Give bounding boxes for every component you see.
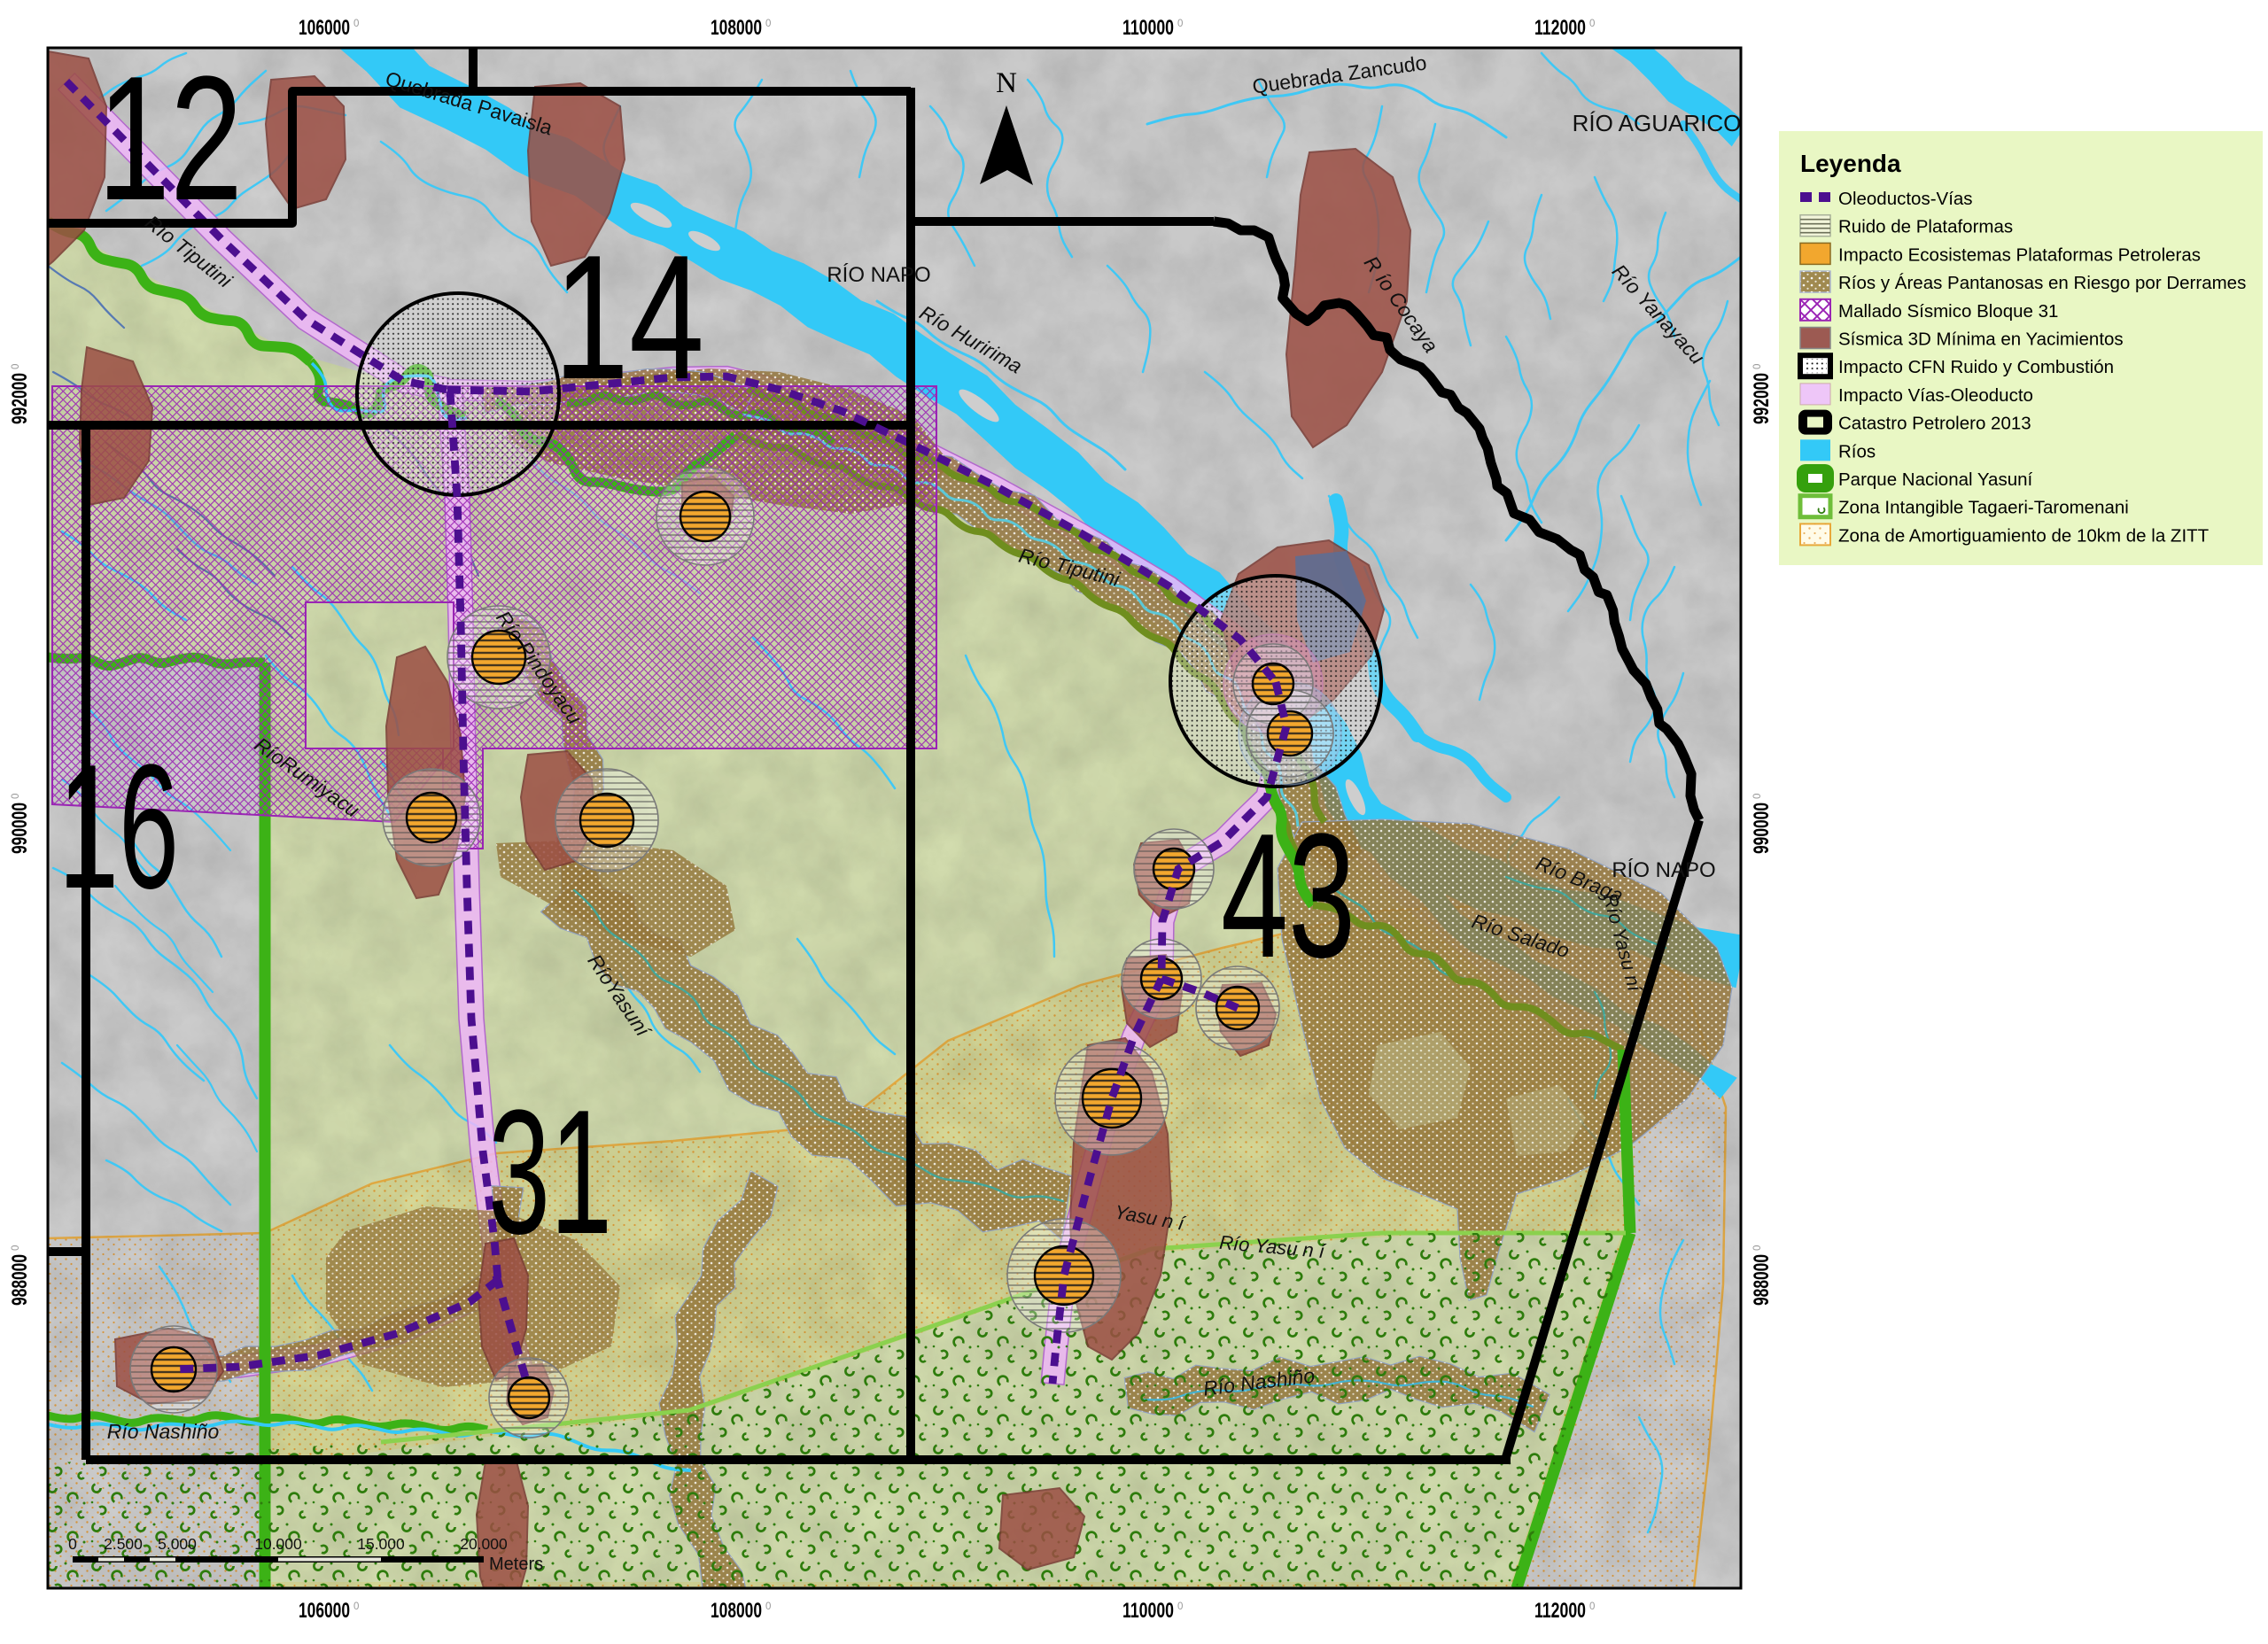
svg-text:0: 0 xyxy=(1177,19,1183,29)
svg-text:N: N xyxy=(996,67,1017,99)
svg-text:106000: 106000 xyxy=(299,1599,350,1623)
svg-text:Parque Nacional Yasuní: Parque Nacional Yasuní xyxy=(1838,469,2032,490)
svg-text:Leyenda: Leyenda xyxy=(1800,150,1901,177)
svg-text:0: 0 xyxy=(765,1601,771,1612)
svg-text:0: 0 xyxy=(1589,19,1595,29)
svg-text:Ruido de Plataformas: Ruido de Plataformas xyxy=(1838,217,2013,237)
svg-text:10.000: 10.000 xyxy=(254,1535,302,1553)
svg-text:0: 0 xyxy=(1752,1245,1763,1251)
svg-text:31: 31 xyxy=(488,1074,612,1271)
svg-text:RÍO AGUARICO: RÍO AGUARICO xyxy=(1573,110,1742,136)
svg-text:990000: 990000 xyxy=(1750,803,1774,854)
svg-text:Impacto Vías-Oleoducto: Impacto Vías-Oleoducto xyxy=(1838,385,2033,406)
svg-text:2.500: 2.500 xyxy=(104,1535,143,1553)
svg-text:43: 43 xyxy=(1221,797,1355,995)
svg-text:16: 16 xyxy=(58,728,179,926)
svg-text:Catastro Petrolero 2013: Catastro Petrolero 2013 xyxy=(1838,414,2031,434)
svg-text:106000: 106000 xyxy=(299,16,350,40)
svg-text:Zona Intangible Tagaeri-Tarome: Zona Intangible Tagaeri-Taromenani xyxy=(1838,498,2129,518)
svg-text:14: 14 xyxy=(554,219,704,416)
svg-text:15.000: 15.000 xyxy=(357,1535,405,1553)
svg-text:Meters: Meters xyxy=(489,1555,543,1574)
svg-text:0: 0 xyxy=(11,1245,21,1251)
svg-text:12: 12 xyxy=(97,40,243,237)
svg-text:112000: 112000 xyxy=(1534,1599,1586,1623)
svg-text:Río Nashiño: Río Nashiño xyxy=(107,1420,220,1443)
svg-text:Mallado Sísmico Bloque 31: Mallado Sísmico Bloque 31 xyxy=(1838,301,2058,322)
svg-text:0: 0 xyxy=(1589,1601,1595,1612)
svg-text:Ríos: Ríos xyxy=(1838,441,1876,461)
svg-text:992000: 992000 xyxy=(1750,373,1774,424)
svg-text:0: 0 xyxy=(353,19,359,29)
svg-text:0: 0 xyxy=(68,1535,77,1553)
svg-text:20.000: 20.000 xyxy=(460,1535,508,1553)
svg-text:990000: 990000 xyxy=(8,803,32,854)
svg-text:5.000: 5.000 xyxy=(158,1535,197,1553)
svg-text:RÍO NAPO: RÍO NAPO xyxy=(827,263,930,287)
svg-text:Oleoductos-Vías: Oleoductos-Vías xyxy=(1838,189,1973,209)
svg-text:0: 0 xyxy=(765,19,771,29)
svg-text:0: 0 xyxy=(1177,1601,1183,1612)
svg-text:108000: 108000 xyxy=(711,1599,762,1623)
svg-text:0: 0 xyxy=(1752,364,1763,369)
svg-text:110000: 110000 xyxy=(1122,16,1174,40)
svg-text:Impacto Ecosistemas Plataforma: Impacto Ecosistemas Plataformas Petroler… xyxy=(1838,244,2201,265)
svg-text:0: 0 xyxy=(1752,794,1763,799)
svg-text:RÍO NAPO: RÍO NAPO xyxy=(1612,858,1715,882)
svg-text:108000: 108000 xyxy=(711,16,762,40)
svg-text:0: 0 xyxy=(353,1601,359,1612)
svg-text:992000: 992000 xyxy=(8,373,32,424)
svg-text:Sísmica 3D Mínima en Yacimient: Sísmica 3D Mínima en Yacimientos xyxy=(1838,330,2124,350)
svg-text:Impacto CFN Ruido y Combustión: Impacto CFN Ruido y Combustión xyxy=(1838,357,2114,377)
svg-text:Zona de Amortiguamiento de 10k: Zona de Amortiguamiento de 10km de la ZI… xyxy=(1838,525,2210,546)
svg-text:988000: 988000 xyxy=(8,1254,32,1306)
svg-text:0: 0 xyxy=(11,364,21,369)
svg-text:988000: 988000 xyxy=(1750,1254,1774,1306)
svg-text:112000: 112000 xyxy=(1534,16,1586,40)
svg-text:Ríos y Áreas Pantanosas en Rie: Ríos y Áreas Pantanosas en Riesgo por De… xyxy=(1838,273,2246,293)
svg-text:0: 0 xyxy=(11,794,21,799)
svg-text:110000: 110000 xyxy=(1122,1599,1174,1623)
